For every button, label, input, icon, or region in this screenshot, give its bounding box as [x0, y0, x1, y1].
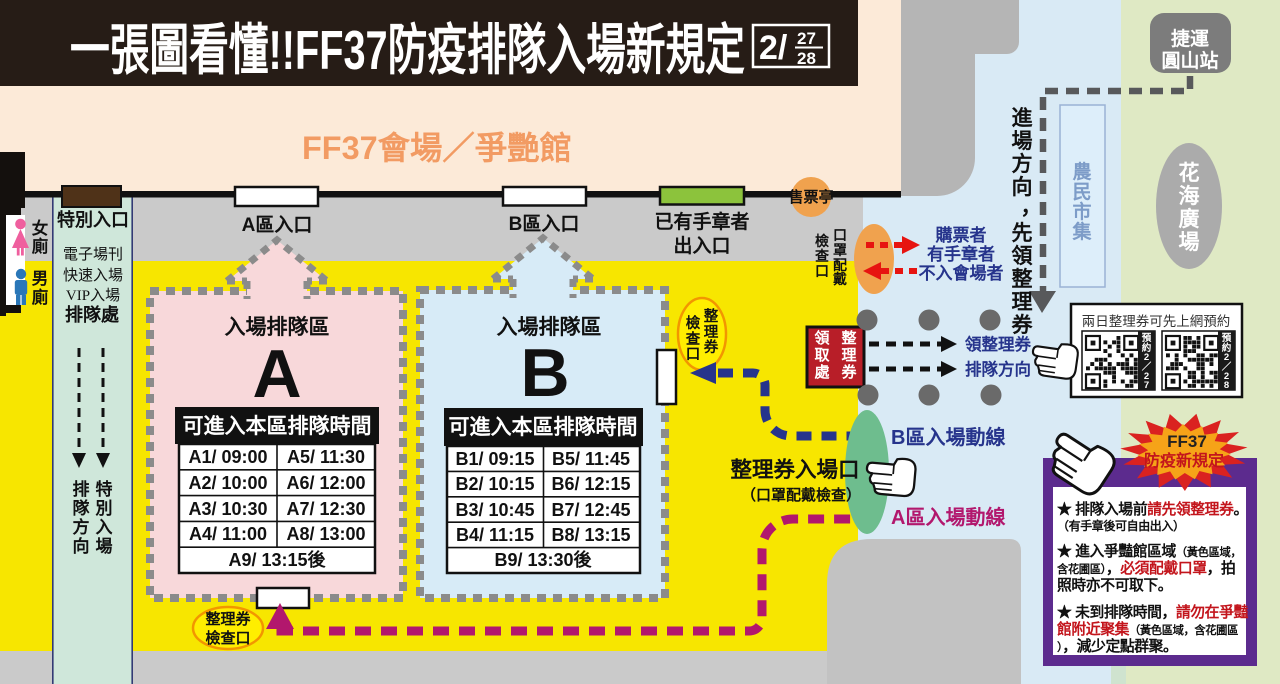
- svg-text:A: A: [252, 336, 301, 412]
- svg-text:口: 口: [815, 263, 829, 279]
- svg-text:券: 券: [1012, 313, 1034, 337]
- svg-text:可進入本區排隊時間: 可進入本區排隊時間: [183, 414, 372, 438]
- svg-text:女: 女: [32, 218, 49, 238]
- svg-text:A6/ 12:00: A6/ 12:00: [286, 473, 365, 493]
- svg-text:市: 市: [1072, 200, 1091, 223]
- svg-text:★ 排隊入場前請先領整理券。: ★ 排隊入場前請先領整理券。: [1057, 500, 1248, 518]
- svg-text:A5/ 11:30: A5/ 11:30: [287, 447, 365, 467]
- svg-text:戴: 戴: [833, 271, 847, 287]
- svg-text:一張圖看懂!!FF37防疫排隊入場新規定: 一張圖看懂!!FF37防疫排隊入場新規定: [70, 19, 745, 81]
- svg-text:FF37: FF37: [1167, 432, 1207, 451]
- svg-text:口: 口: [686, 347, 701, 363]
- svg-text:圓山站: 圓山站: [1161, 49, 1218, 72]
- svg-text:別: 別: [95, 499, 113, 518]
- svg-text:已有手章者: 已有手章者: [654, 210, 749, 233]
- svg-text:售票亭: 售票亭: [788, 188, 833, 206]
- svg-text:理: 理: [704, 324, 719, 341]
- svg-text:，: ，: [1021, 196, 1042, 219]
- svg-text:農: 農: [1072, 161, 1091, 183]
- svg-text:A區入場動線: A區入場動線: [891, 505, 1005, 529]
- svg-text:A區入口: A區入口: [242, 214, 313, 236]
- svg-text:場: 場: [1012, 130, 1033, 153]
- svg-text:7: 7: [1144, 380, 1149, 391]
- svg-text:特: 特: [96, 479, 113, 499]
- svg-text:民: 民: [1072, 182, 1091, 203]
- svg-text:排隊處: 排隊處: [65, 304, 119, 325]
- svg-text:B9/ 13:30後: B9/ 13:30後: [494, 549, 592, 570]
- svg-text:廁: 廁: [32, 236, 49, 256]
- svg-text:場: 場: [96, 537, 113, 556]
- svg-text:理: 理: [841, 347, 856, 364]
- svg-text:A8/ 13:00: A8/ 13:00: [286, 524, 365, 544]
- svg-text:A4/ 11:00: A4/ 11:00: [189, 524, 267, 544]
- svg-text:處: 處: [814, 363, 830, 381]
- svg-text:隊: 隊: [73, 498, 91, 518]
- svg-text:2/: 2/: [759, 29, 788, 67]
- svg-text:整: 整: [841, 329, 856, 347]
- svg-text:不入會場者: 不入會場者: [919, 263, 1004, 283]
- svg-text:檢: 檢: [686, 314, 701, 332]
- svg-text:特別入口: 特別入口: [57, 209, 129, 230]
- svg-text:方: 方: [73, 517, 90, 537]
- svg-text:先: 先: [1012, 222, 1033, 245]
- svg-text:男: 男: [32, 269, 49, 288]
- svg-text:罩: 罩: [833, 242, 847, 258]
- svg-text:理: 理: [1012, 291, 1033, 314]
- svg-text:FF37會場／爭艷館: FF37會場／爭艷館: [302, 130, 572, 166]
- svg-text:B5/ 11:45: B5/ 11:45: [552, 449, 630, 469]
- svg-text:領整理券: 領整理券: [965, 334, 1032, 354]
- svg-text:28: 28: [797, 49, 816, 68]
- svg-text:快速入場: 快速入場: [63, 267, 123, 284]
- svg-text:捷運: 捷運: [1171, 27, 1209, 50]
- svg-text:場: 場: [1179, 231, 1200, 254]
- svg-text:B區入口: B區入口: [509, 213, 580, 235]
- svg-text:入: 入: [96, 518, 113, 537]
- svg-text:檢: 檢: [815, 233, 829, 249]
- svg-text:領: 領: [1012, 244, 1034, 268]
- svg-text:檢查口: 檢查口: [205, 629, 250, 647]
- svg-text:（有手章後可自由出入）: （有手章後可自由出入）: [1057, 518, 1185, 533]
- svg-text:防疫新規定: 防疫新規定: [1144, 451, 1224, 470]
- svg-text:A9/ 13:15後: A9/ 13:15後: [228, 549, 326, 570]
- svg-text:照時亦不可取下。: 照時亦不可取下。: [1057, 576, 1172, 594]
- svg-text:向: 向: [73, 536, 90, 556]
- svg-text:8: 8: [1224, 380, 1229, 391]
- svg-text:★ 未到排隊時間，請勿在爭豔: ★ 未到排隊時間，請勿在爭豔: [1057, 603, 1248, 621]
- svg-text:B1/ 09:15: B1/ 09:15: [455, 449, 534, 469]
- svg-text:花: 花: [1179, 161, 1200, 185]
- svg-text:兩日整理券可先上網預約: 兩日整理券可先上網預約: [1082, 314, 1231, 329]
- svg-text:整: 整: [704, 307, 719, 325]
- svg-text:A1/ 09:00: A1/ 09:00: [188, 447, 267, 467]
- svg-text:A7/ 12:30: A7/ 12:30: [286, 499, 365, 519]
- svg-text:可進入本區排隊時間: 可進入本區排隊時間: [449, 415, 638, 439]
- svg-text:海: 海: [1179, 184, 1200, 208]
- svg-text:B6/ 12:15: B6/ 12:15: [551, 474, 630, 494]
- svg-text:整理券入場口: 整理券入場口: [730, 457, 859, 482]
- svg-text:B8/ 13:15: B8/ 13:15: [551, 525, 630, 545]
- svg-text:電子場刊: 電子場刊: [63, 246, 123, 263]
- svg-text:領: 領: [814, 329, 830, 347]
- svg-text:排: 排: [73, 479, 90, 499]
- svg-text:排隊方向: 排隊方向: [965, 359, 1031, 379]
- svg-text:出入口: 出入口: [673, 234, 730, 257]
- svg-text:A3/ 10:30: A3/ 10:30: [188, 499, 267, 519]
- svg-text:27: 27: [797, 29, 816, 48]
- svg-text:購票者: 購票者: [936, 225, 987, 245]
- svg-text:券: 券: [704, 338, 719, 356]
- svg-text:B: B: [520, 335, 569, 411]
- svg-text:券: 券: [841, 363, 857, 381]
- svg-text:A2/ 10:00: A2/ 10:00: [188, 473, 267, 493]
- svg-text:有手章者: 有手章者: [927, 244, 995, 264]
- svg-text:廁: 廁: [32, 287, 49, 307]
- svg-text:整理券: 整理券: [205, 610, 251, 628]
- svg-text:查: 查: [815, 248, 830, 264]
- svg-text:集: 集: [1071, 220, 1092, 243]
- svg-text:VIP入場: VIP入場: [66, 287, 120, 304]
- svg-text:），減少定點群聚。: ），減少定點群聚。: [1057, 637, 1177, 655]
- svg-text:整: 整: [1012, 267, 1033, 291]
- svg-text:方: 方: [1012, 152, 1033, 176]
- svg-text:進: 進: [1012, 107, 1033, 130]
- svg-text:B4/ 11:15: B4/ 11:15: [456, 525, 534, 545]
- svg-text:（口罩配戴檢查）: （口罩配戴檢查）: [741, 486, 861, 504]
- svg-text:B區入場動線: B區入場動線: [891, 425, 1005, 449]
- svg-text:查: 查: [686, 330, 701, 348]
- svg-text:口: 口: [833, 227, 847, 243]
- svg-text:B3/ 10:45: B3/ 10:45: [455, 500, 534, 520]
- svg-text:B7/ 12:45: B7/ 12:45: [551, 500, 630, 520]
- svg-text:廣: 廣: [1179, 207, 1200, 231]
- svg-text:B2/ 10:15: B2/ 10:15: [455, 474, 534, 494]
- svg-text:取: 取: [814, 347, 830, 364]
